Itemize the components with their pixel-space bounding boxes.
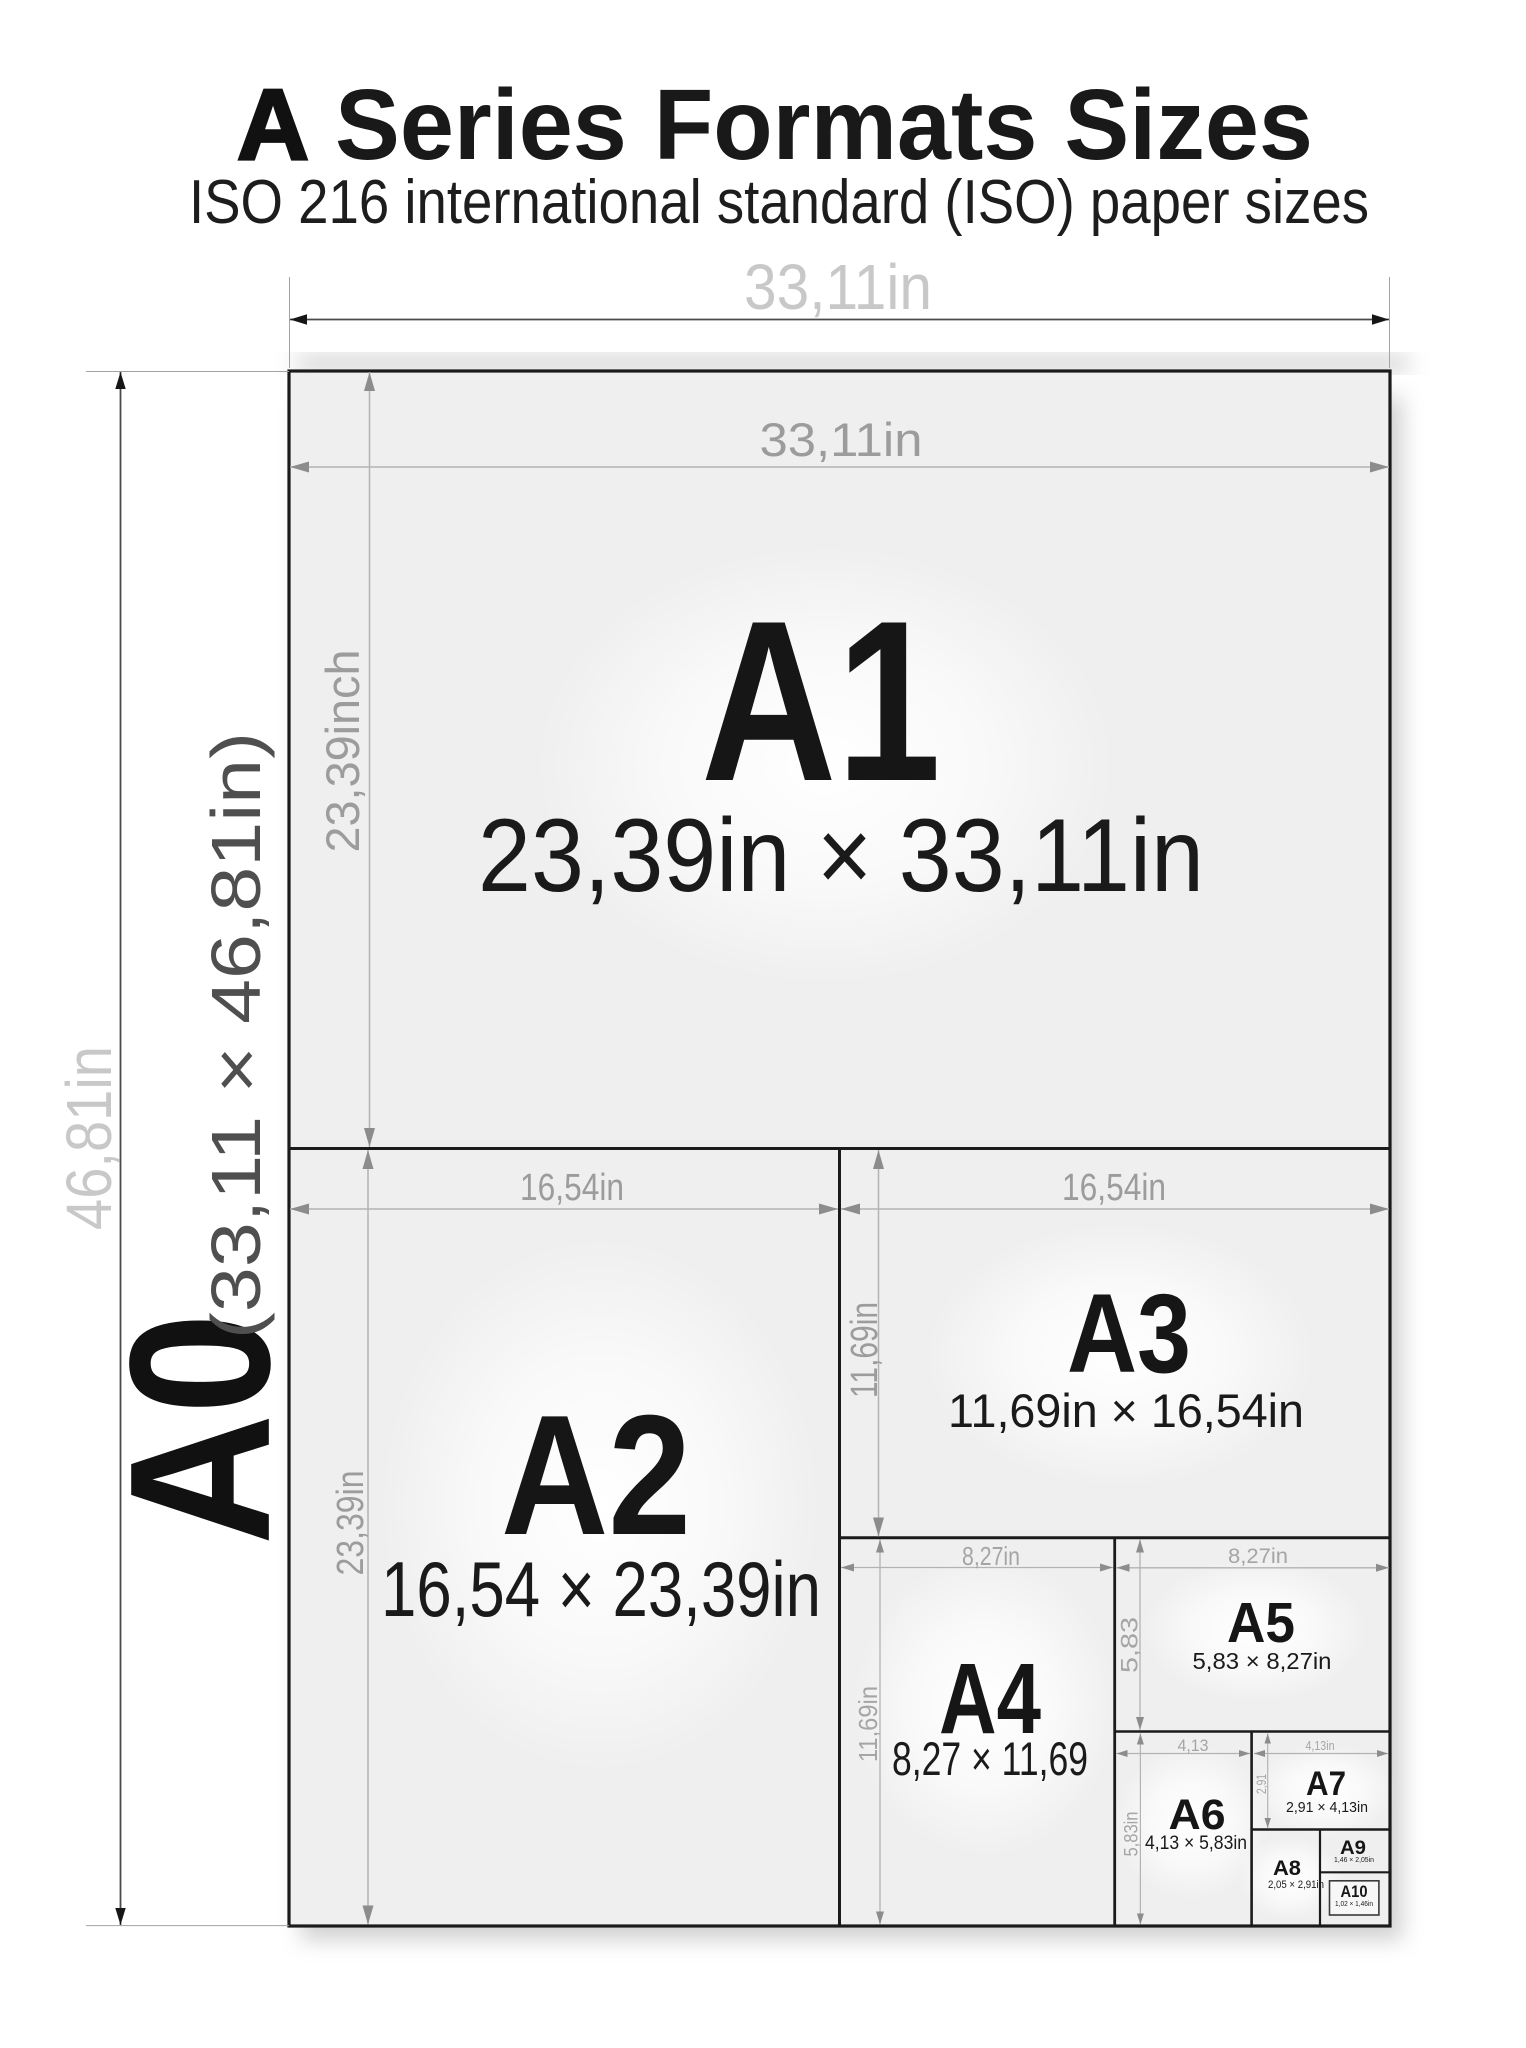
svg-text:2,05 × 2,91in: 2,05 × 2,91in [1268,1879,1324,1891]
svg-text:A10: A10 [1341,1882,1368,1901]
svg-text:1,46 × 2,05in: 1,46 × 2,05in [1334,1855,1374,1864]
svg-text:A7: A7 [1306,1765,1346,1803]
svg-text:8,27in: 8,27in [962,1541,1020,1571]
svg-text:4,13 × 5,83in: 4,13 × 5,83in [1145,1832,1247,1854]
svg-text:16,54in: 16,54in [1062,1167,1166,1209]
svg-text:5,83: 5,83 [1116,1617,1143,1673]
svg-text:1,02 × 1,46in: 1,02 × 1,46in [1335,1901,1373,1908]
svg-text:16,54 × 23,39in: 16,54 × 23,39in [381,1545,821,1633]
svg-text:46,81in: 46,81in [53,1046,125,1230]
svg-text:23,39in × 33,11in: 23,39in × 33,11in [478,798,1204,914]
svg-text:11,69in: 11,69in [853,1686,883,1762]
svg-text:(33,11 × 46,81in): (33,11 × 46,81in) [197,732,275,1339]
svg-text:A0: A0 [89,1313,312,1545]
svg-text:8,27in: 8,27in [1228,1545,1288,1568]
svg-text:8,27 × 11,69: 8,27 × 11,69 [892,1732,1088,1785]
svg-text:4,13: 4,13 [1178,1736,1209,1755]
svg-text:16,54in: 16,54in [520,1167,624,1209]
svg-text:33,11in: 33,11in [760,413,923,466]
svg-text:4,13in: 4,13in [1306,1738,1335,1753]
svg-text:5,83in: 5,83in [1122,1812,1143,1857]
svg-text:Series Formats Sizes: Series Formats Sizes [335,69,1313,181]
svg-text:11,69in: 11,69in [844,1302,886,1398]
svg-text:11,69in × 16,54in: 11,69in × 16,54in [948,1384,1304,1437]
svg-text:23,39inch: 23,39inch [316,650,369,853]
svg-text:33,11in: 33,11in [744,251,932,323]
svg-text:A2: A2 [501,1380,691,1571]
svg-text:A1: A1 [701,573,941,829]
svg-text:2,91 × 4,13in: 2,91 × 4,13in [1286,1799,1368,1816]
svg-text:23,39in: 23,39in [330,1471,372,1576]
svg-text:A5: A5 [1227,1591,1295,1655]
svg-text:A: A [237,69,309,181]
svg-text:5,83 × 8,27in: 5,83 × 8,27in [1193,1648,1332,1674]
svg-text:A3: A3 [1067,1271,1191,1396]
svg-text:A8: A8 [1273,1857,1301,1880]
svg-text:2,91: 2,91 [1253,1774,1269,1794]
svg-text:ISO 216 international standard: ISO 216 international standard (ISO) pap… [189,168,1369,237]
